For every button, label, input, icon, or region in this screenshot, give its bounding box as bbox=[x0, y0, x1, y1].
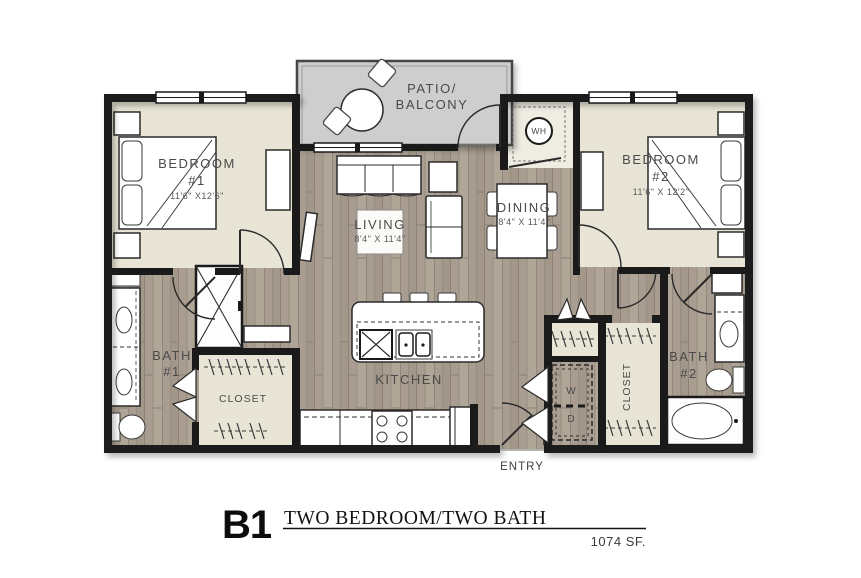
dresser bbox=[581, 152, 603, 210]
plan-area: 1074 SF. bbox=[591, 534, 646, 549]
plan-name: TWO BEDROOM/TWO BATH bbox=[284, 508, 546, 529]
patio-label-line2: BALCONY bbox=[396, 97, 469, 112]
kitchen-sink-icon bbox=[396, 330, 432, 359]
closet2-floor bbox=[606, 323, 660, 445]
side-table bbox=[429, 162, 457, 192]
nightstand bbox=[114, 233, 140, 258]
bedroom1-label: BEDROOM bbox=[158, 156, 236, 171]
nightstand bbox=[114, 112, 140, 135]
bath1-label: BATH bbox=[152, 348, 192, 363]
bedroom1-dims: 11'6" X12'6" bbox=[170, 191, 224, 201]
sink-icon bbox=[116, 369, 132, 395]
dresser bbox=[266, 150, 290, 210]
bar-stool bbox=[383, 293, 401, 302]
fridge-icon bbox=[450, 407, 472, 446]
sofa-symbol bbox=[337, 156, 421, 196]
nightstand bbox=[718, 232, 744, 257]
bath2-number: #2 bbox=[680, 366, 697, 381]
kitchen-counter bbox=[300, 407, 472, 446]
toilet-icon bbox=[706, 367, 744, 393]
bath2-label: BATH bbox=[669, 349, 709, 364]
kitchen-label: KITCHEN bbox=[375, 372, 443, 387]
toilet-icon bbox=[109, 413, 145, 441]
kitchen-island bbox=[352, 293, 484, 362]
plan-code: B1 bbox=[222, 503, 272, 547]
patio-label-line1: PATIO/ bbox=[407, 81, 457, 96]
living-dims: 8'4" X 11'4" bbox=[354, 234, 405, 244]
shower-icon bbox=[196, 266, 243, 348]
nightstand bbox=[718, 112, 744, 135]
sink-icon bbox=[720, 321, 738, 347]
linen-cabinet bbox=[244, 326, 290, 342]
window bbox=[156, 92, 246, 103]
dining-dims: 8'4" X 11'4" bbox=[498, 217, 549, 227]
bathtub-icon bbox=[667, 397, 744, 445]
dishwasher-icon bbox=[360, 330, 392, 359]
bedroom1-number: #1 bbox=[188, 173, 205, 188]
bedroom2-label: BEDROOM bbox=[622, 152, 700, 167]
double-vanity bbox=[111, 288, 140, 406]
bar-stool bbox=[438, 293, 456, 302]
sink-icon bbox=[116, 307, 132, 333]
floor-plan-sheet: PATIO/ BALCONY BEDROOM #1 11'6" X12'6" B… bbox=[0, 0, 861, 578]
living-label: LIVING bbox=[354, 217, 406, 232]
linen-cabinet bbox=[712, 271, 742, 293]
stove-icon bbox=[372, 411, 412, 446]
bedroom2-number: #2 bbox=[652, 169, 669, 184]
closet2-label: CLOSET bbox=[621, 363, 633, 411]
bath1-number: #1 bbox=[163, 364, 180, 379]
closet1-label: CLOSET bbox=[219, 393, 267, 405]
water-heater-label: WH bbox=[531, 126, 546, 136]
bar-stool bbox=[410, 293, 428, 302]
bedroom2-dims: 11'6" X 12'2" bbox=[633, 187, 690, 197]
dryer-label: D bbox=[567, 414, 574, 425]
entry-label: ENTRY bbox=[500, 461, 544, 473]
vanity bbox=[715, 295, 744, 362]
sliding-door bbox=[314, 143, 402, 152]
washer-label: W bbox=[566, 386, 576, 397]
window bbox=[589, 92, 677, 103]
dining-label: DINING bbox=[497, 200, 552, 215]
title-block: B1 TWO BEDROOM/TWO BATH 1074 SF. bbox=[222, 503, 646, 549]
lounge-chair bbox=[426, 196, 462, 258]
floor-plan: PATIO/ BALCONY BEDROOM #1 11'6" X12'6" B… bbox=[0, 0, 861, 578]
